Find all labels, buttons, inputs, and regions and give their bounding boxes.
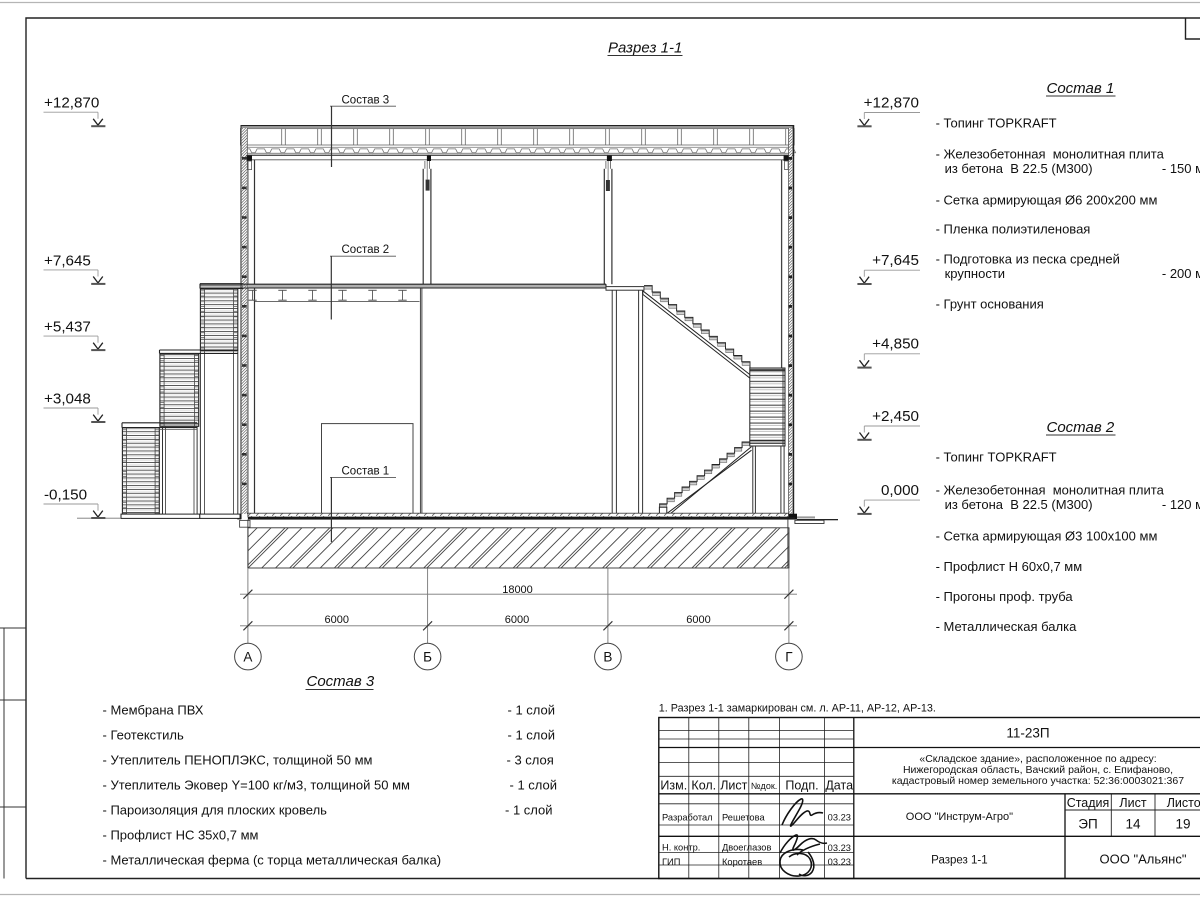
svg-text:из бетона В 22.5 (М300): из бетона В 22.5 (М300) <box>945 161 1093 176</box>
svg-text:Двоеглазов: Двоеглазов <box>722 843 771 853</box>
svg-text:+3,048: +3,048 <box>44 390 91 407</box>
svg-text:6000: 6000 <box>505 614 529 626</box>
svg-text:В: В <box>603 650 612 665</box>
svg-text:11-23П: 11-23П <box>1006 726 1049 741</box>
svg-text:19: 19 <box>1175 817 1190 832</box>
svg-text:А: А <box>243 650 252 665</box>
svg-text:+7,645: +7,645 <box>872 252 919 269</box>
svg-text:- 3 слоя: - 3 слоя <box>507 753 554 768</box>
svg-text:- 200 мм: - 200 мм <box>1162 266 1200 281</box>
svg-text:- Прогоны проф. труба: - Прогоны проф. труба <box>936 589 1074 604</box>
svg-text:-0,150: -0,150 <box>44 486 87 503</box>
svg-text:- Топинг TOPKRAFT: - Топинг TOPKRAFT <box>936 116 1057 131</box>
svg-text:Состав 1: Состав 1 <box>342 466 390 478</box>
svg-text:№док.: №док. <box>751 781 777 791</box>
svg-text:Лист: Лист <box>1119 796 1146 810</box>
svg-text:- Профлист Н 60х0,7 мм: - Профлист Н 60х0,7 мм <box>936 559 1083 574</box>
svg-text:- Сетка армирующая Ø3 100х100: - Сетка армирующая Ø3 100х100 мм <box>936 529 1158 544</box>
svg-text:0,000: 0,000 <box>881 482 919 499</box>
svg-text:Изм.: Изм. <box>660 779 687 793</box>
svg-text:- Подготовка из песка средней: - Подготовка из песка средней <box>936 252 1120 267</box>
svg-text:- Металлическая ферма (с торца: - Металлическая ферма (с торца металличе… <box>103 853 442 868</box>
svg-text:- 1 слой: - 1 слой <box>510 778 558 793</box>
svg-text:ООО "Альянс": ООО "Альянс" <box>1100 852 1187 867</box>
svg-text:+7,645: +7,645 <box>44 252 91 269</box>
svg-text:- Утеплитель ПЕНОПЛЭКС, толщин: - Утеплитель ПЕНОПЛЭКС, толщиной 50 мм <box>103 753 373 768</box>
svg-text:- Сетка армирующая Ø6 200х200: - Сетка армирующая Ø6 200х200 мм <box>936 193 1158 208</box>
svg-text:18000: 18000 <box>502 584 533 596</box>
svg-text:ГИП: ГИП <box>662 857 680 867</box>
svg-text:ЭП: ЭП <box>1078 817 1097 832</box>
svg-text:- 1 слой: - 1 слой <box>508 703 556 718</box>
svg-text:- Железобетонная монолитная п: - Железобетонная монолитная плита <box>936 146 1165 161</box>
svg-text:Разработал: Разработал <box>662 813 713 823</box>
svg-text:Листов: Листов <box>1167 796 1200 810</box>
svg-text:Кол.: Кол. <box>691 779 716 793</box>
svg-text:03.23: 03.23 <box>828 857 851 867</box>
svg-text:6000: 6000 <box>325 614 349 626</box>
svg-text:+2,450: +2,450 <box>872 408 919 425</box>
svg-text:кадастровый номер земельного у: кадастровый номер земельного участка: 52… <box>892 775 1184 787</box>
svg-text:из бетона В 22.5 (М300): из бетона В 22.5 (М300) <box>945 497 1093 512</box>
svg-text:+4,850: +4,850 <box>872 336 919 353</box>
svg-text:Дата: Дата <box>825 779 853 793</box>
svg-text:03.23: 03.23 <box>828 843 851 853</box>
svg-text:6000: 6000 <box>686 614 710 626</box>
svg-text:Стадия: Стадия <box>1067 796 1110 810</box>
svg-text:Лист: Лист <box>720 779 747 793</box>
svg-text:- Топинг TOPKRAFT: - Топинг TOPKRAFT <box>936 450 1057 465</box>
svg-text:Состав 1: Состав 1 <box>1047 80 1115 97</box>
svg-text:+12,870: +12,870 <box>44 95 99 112</box>
svg-text:Г: Г <box>785 650 793 665</box>
svg-text:крупности: крупности <box>945 266 1005 281</box>
svg-text:Коротаев: Коротаев <box>722 857 762 867</box>
svg-text:1. Разрез 1-1 замаркирован см.: 1. Разрез 1-1 замаркирован см. л. АР-11,… <box>659 703 936 715</box>
svg-text:- 1 слой: - 1 слой <box>505 803 553 818</box>
svg-text:- Пленка полиэтиленовая: - Пленка полиэтиленовая <box>936 221 1091 236</box>
svg-text:- Металлическая балка: - Металлическая балка <box>936 619 1077 634</box>
svg-text:Состав 2: Состав 2 <box>342 244 390 256</box>
svg-text:03.23: 03.23 <box>828 813 851 823</box>
svg-text:- Утеплитель Эковер Y=100 кг/м: - Утеплитель Эковер Y=100 кг/м3, толщино… <box>103 778 411 793</box>
svg-text:Состав 3: Состав 3 <box>307 673 375 690</box>
svg-text:- Грунт основания: - Грунт основания <box>936 296 1044 311</box>
svg-text:- Мембрана ПВХ: - Мембрана ПВХ <box>103 703 204 718</box>
svg-text:Н. контр.: Н. контр. <box>662 843 700 853</box>
svg-text:Б: Б <box>423 650 432 665</box>
svg-text:- Железобетонная монолитная п: - Железобетонная монолитная плита <box>936 482 1165 497</box>
svg-text:Состав 2: Состав 2 <box>1047 419 1115 436</box>
svg-text:- 120 мм: - 120 мм <box>1162 497 1200 512</box>
svg-text:+12,870: +12,870 <box>864 94 919 111</box>
svg-text:Разрез 1-1: Разрез 1-1 <box>608 40 682 57</box>
svg-text:Разрез 1-1: Разрез 1-1 <box>931 855 987 867</box>
svg-text:ООО "Инструм-Агро": ООО "Инструм-Агро" <box>906 811 1013 823</box>
svg-text:Подп.: Подп. <box>785 779 818 793</box>
svg-text:Состав 3: Состав 3 <box>342 95 390 107</box>
svg-text:14: 14 <box>1125 817 1141 832</box>
svg-text:- Геотекстиль: - Геотекстиль <box>103 728 184 743</box>
svg-text:+5,437: +5,437 <box>44 319 91 336</box>
svg-text:- Пароизоляция для плоских кро: - Пароизоляция для плоских кровель <box>103 803 328 818</box>
svg-text:- 150 мм: - 150 мм <box>1162 161 1200 176</box>
svg-text:- 1 слой: - 1 слой <box>508 728 556 743</box>
svg-text:Решетова: Решетова <box>722 813 765 823</box>
svg-text:- Профлист НС 35х0,7 мм: - Профлист НС 35х0,7 мм <box>103 828 259 843</box>
